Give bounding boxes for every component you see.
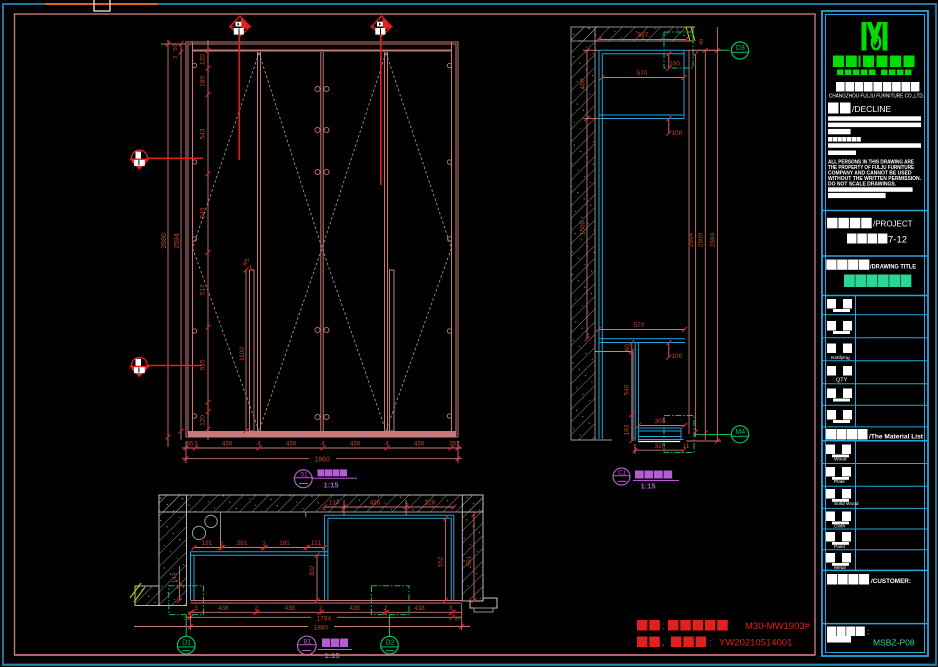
svg-text:B1: B1 [303, 639, 311, 646]
svg-text:3: 3 [194, 441, 198, 448]
svg-text:Plate: Plate [834, 479, 845, 485]
svg-text:3: 3 [262, 541, 265, 547]
svg-text:281: 281 [237, 540, 248, 547]
svg-text:/PROJECT: /PROJECT [873, 220, 913, 229]
svg-text:11: 11 [683, 443, 690, 450]
svg-text:513: 513 [200, 284, 207, 295]
svg-text:/DECLINE: /DECLINE [852, 104, 892, 114]
svg-text:65: 65 [187, 441, 194, 448]
svg-text:7-12: 7-12 [888, 235, 907, 246]
svg-text:D3: D3 [736, 45, 745, 52]
svg-text:C1: C1 [618, 470, 627, 477]
svg-text:100: 100 [672, 353, 683, 360]
svg-text:Paint: Paint [834, 544, 846, 550]
svg-text:40: 40 [699, 39, 705, 45]
svg-text:180: 180 [200, 76, 207, 87]
svg-text:2: 2 [319, 605, 323, 612]
svg-text:438: 438 [285, 605, 296, 612]
svg-text:1100: 1100 [239, 347, 246, 361]
svg-text:2: 2 [384, 605, 388, 612]
svg-text:D2: D2 [385, 640, 394, 647]
svg-text:328: 328 [425, 500, 436, 507]
svg-text:60: 60 [625, 344, 631, 351]
svg-text:/CUSTOMER:: /CUSTOMER: [871, 578, 911, 585]
svg-text:597: 597 [638, 32, 649, 39]
svg-text:438: 438 [350, 441, 361, 448]
svg-text:438: 438 [222, 441, 233, 448]
svg-text::: : [709, 638, 712, 649]
svg-text:MSBZ-P08: MSBZ-P08 [873, 638, 915, 648]
svg-text:,: , [662, 638, 665, 649]
svg-text:2594: 2594 [688, 232, 695, 247]
svg-text:100: 100 [669, 61, 680, 68]
svg-text:552: 552 [437, 556, 444, 567]
svg-text:1794: 1794 [317, 615, 332, 622]
svg-text:35: 35 [184, 616, 190, 622]
svg-text:134: 134 [329, 500, 340, 507]
svg-text:438: 438 [414, 605, 425, 612]
svg-text:438: 438 [350, 605, 361, 612]
svg-text:1860: 1860 [313, 625, 328, 632]
svg-text:543: 543 [200, 128, 207, 139]
svg-text:570: 570 [634, 322, 645, 329]
svg-text:438: 438 [414, 441, 425, 448]
svg-text:57: 57 [453, 441, 460, 448]
svg-text:01: 01 [300, 472, 308, 479]
svg-text:305: 305 [655, 418, 666, 425]
svg-text:Cloth: Cloth [834, 523, 846, 529]
svg-text:D1: D1 [182, 640, 191, 647]
svg-text:4: 4 [385, 441, 389, 448]
svg-text:YW20210514001: YW20210514001 [719, 638, 792, 649]
svg-text:4: 4 [321, 441, 325, 448]
svg-text:2600: 2600 [698, 232, 705, 247]
svg-text:3: 3 [449, 605, 453, 612]
svg-text:4: 4 [257, 441, 261, 448]
svg-text::: : [662, 621, 665, 632]
svg-text:3: 3 [220, 541, 223, 547]
svg-text:2680: 2680 [161, 233, 168, 249]
svg-text:2680: 2680 [710, 232, 717, 247]
svg-text:3: 3 [173, 56, 179, 59]
svg-text:/DRAWING TITLE: /DRAWING TITLE [870, 263, 916, 270]
svg-text:281: 281 [279, 540, 290, 547]
svg-text:438: 438 [286, 441, 297, 448]
svg-text:570: 570 [637, 70, 648, 77]
svg-text:191: 191 [202, 540, 213, 547]
svg-text:3: 3 [194, 605, 198, 612]
svg-text:Notifying: Notifying [831, 355, 850, 361]
svg-text:1860: 1860 [314, 456, 330, 463]
svg-text:591: 591 [466, 555, 473, 566]
svg-text:302: 302 [309, 565, 316, 576]
svg-text:Wood: Wood [834, 456, 847, 462]
svg-text:2594: 2594 [174, 233, 181, 249]
svg-text:320: 320 [655, 443, 666, 450]
svg-text:/The Material List: /The Material List [869, 435, 923, 441]
svg-text:1:15: 1:15 [640, 482, 655, 491]
svg-text:1500: 1500 [580, 220, 587, 235]
svg-text:120: 120 [200, 415, 207, 426]
svg-text:540: 540 [624, 384, 631, 395]
svg-text:Solid Wood: Solid Wood [834, 501, 859, 507]
svg-text:120: 120 [200, 54, 207, 65]
svg-text:100: 100 [672, 130, 683, 137]
svg-text:M30-MW1903#: M30-MW1903# [745, 621, 811, 632]
svg-text:QTY: QTY [836, 378, 848, 384]
svg-text:540: 540 [200, 207, 207, 218]
svg-text:1:15: 1:15 [323, 481, 338, 490]
svg-text:183: 183 [624, 424, 631, 435]
svg-text::: : [867, 628, 869, 637]
svg-text:50: 50 [173, 44, 179, 50]
svg-text:CHANGZHOU FULJU FURNITURE CO.,: CHANGZHOU FULJU FURNITURE CO.,LTD. [829, 93, 924, 99]
svg-text:57: 57 [454, 617, 460, 623]
svg-text:121: 121 [311, 540, 322, 547]
svg-text:DO NOT SCALE DRAWINGS.: DO NOT SCALE DRAWINGS. [828, 182, 897, 188]
svg-text:426: 426 [370, 500, 381, 507]
svg-text:468: 468 [580, 78, 587, 89]
svg-text:2: 2 [254, 605, 258, 612]
svg-text:438: 438 [218, 605, 229, 612]
svg-text:M4: M4 [735, 429, 745, 436]
svg-text:143: 143 [172, 572, 179, 583]
svg-text:515: 515 [200, 359, 207, 370]
